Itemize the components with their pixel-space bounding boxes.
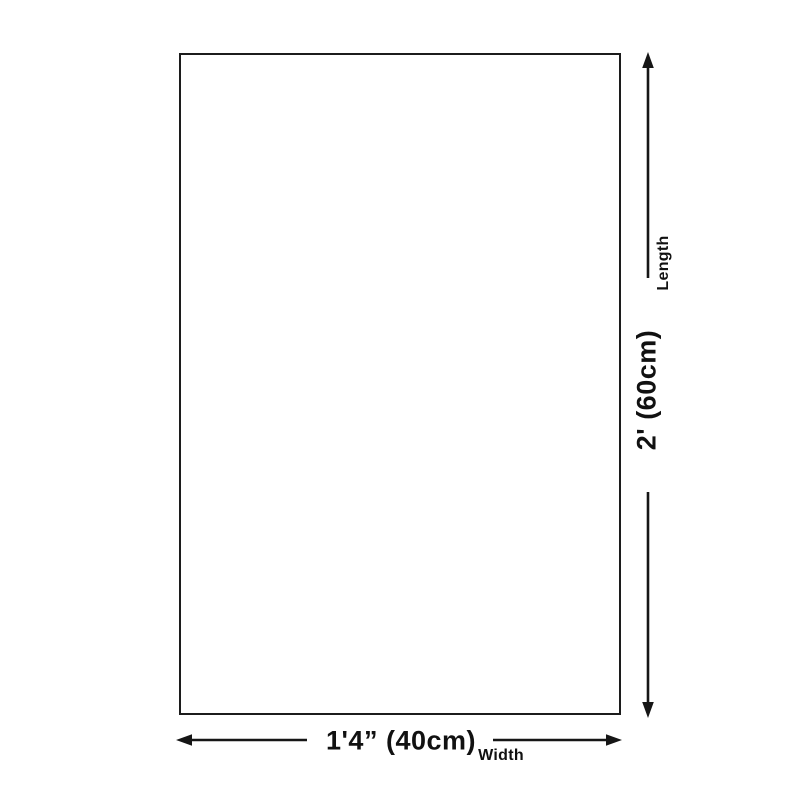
length-arrow-up-icon <box>642 52 654 278</box>
width-value: 1'4” (40cm) <box>326 726 476 757</box>
length-axis-label: Length <box>655 235 673 290</box>
length-arrow-down-icon <box>642 492 654 718</box>
width-axis-label: Width <box>478 747 524 765</box>
length-value: 2' (60cm) <box>632 330 663 450</box>
dimension-arrows <box>0 0 800 800</box>
dimension-diagram: Length 2' (60cm) 1'4” (40cm) Width <box>0 0 800 800</box>
width-arrow-right-icon <box>493 734 622 746</box>
width-arrow-left-icon <box>176 734 307 746</box>
